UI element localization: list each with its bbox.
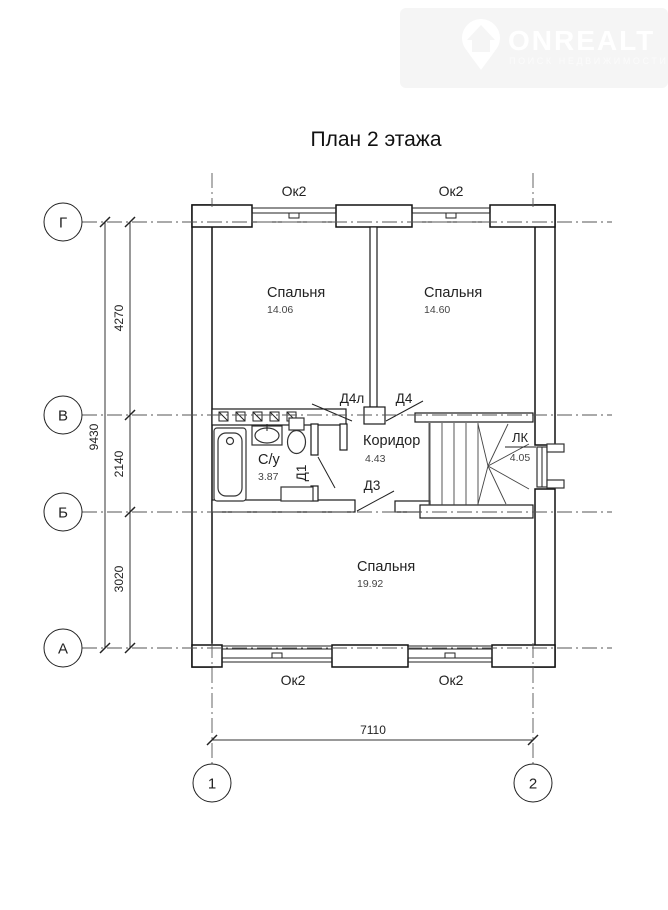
svg-text:1: 1 bbox=[208, 776, 216, 793]
axis-bubble-2: 2 bbox=[514, 764, 552, 802]
wall-top-left bbox=[192, 205, 252, 227]
room-label-corridor: Коридор 4.43 bbox=[363, 433, 420, 465]
wall-top-right bbox=[490, 205, 555, 227]
wall-top-middle bbox=[336, 205, 412, 227]
room-area: 3.87 bbox=[258, 471, 279, 483]
window-top-right bbox=[412, 208, 490, 222]
wall-left bbox=[192, 205, 212, 667]
svg-text:2: 2 bbox=[529, 776, 537, 793]
axis-bubble-g: Г bbox=[44, 203, 82, 241]
window-label-top-left: Ок2 bbox=[282, 183, 307, 199]
room-area: 4.05 bbox=[510, 452, 531, 464]
window-label-bottom-right: Ок2 bbox=[439, 672, 464, 688]
axis-bubble-1: 1 bbox=[193, 764, 231, 802]
dim-segment-4270: 4270 bbox=[112, 304, 126, 331]
axis-bubble-b: Б bbox=[44, 493, 82, 531]
window-right-wall bbox=[537, 444, 564, 488]
watermark-banner: ONREALT ПОИСК НЕДВИЖИМОСТИ bbox=[400, 8, 668, 88]
room-label-bathroom: С/у 3.87 bbox=[258, 452, 281, 483]
axis-bubble-v: В bbox=[44, 396, 82, 434]
room-name: ЛК bbox=[512, 430, 529, 445]
axis-bubble-a: А bbox=[44, 629, 82, 667]
floor-plan-drawing: ONREALT ПОИСК НЕДВИЖИМОСТИ План 2 этажа bbox=[0, 0, 668, 910]
floor-plan-page: ONREALT ПОИСК НЕДВИЖИМОСТИ План 2 этажа bbox=[0, 0, 668, 910]
room-name: Спальня bbox=[357, 559, 415, 575]
wall-stairs-south bbox=[420, 505, 533, 518]
door-label-d4: Д4 bbox=[396, 391, 413, 406]
room-name: Спальня bbox=[424, 285, 482, 301]
axis-grid-lines bbox=[82, 173, 612, 764]
door-swing-d1 bbox=[318, 457, 335, 488]
room-area: 4.43 bbox=[365, 453, 386, 465]
room-area: 19.92 bbox=[357, 578, 383, 590]
brand-tagline: ПОИСК НЕДВИЖИМОСТИ bbox=[509, 56, 668, 66]
room-area: 14.60 bbox=[424, 304, 450, 316]
room-label-stairs: ЛК 4.05 bbox=[505, 430, 536, 464]
svg-text:Б: Б bbox=[58, 505, 68, 522]
toilet-icon bbox=[288, 418, 306, 454]
wall-corridor-west-stub bbox=[340, 424, 347, 450]
door-swing-d3 bbox=[357, 491, 394, 511]
room-name: С/у bbox=[258, 452, 281, 468]
page-title: План 2 этажа bbox=[310, 128, 441, 151]
room-name: Коридор bbox=[363, 433, 420, 449]
dim-total-vertical: 9430 bbox=[87, 423, 101, 450]
wall-stairs-north bbox=[415, 413, 533, 422]
svg-text:Г: Г bbox=[59, 215, 67, 232]
wall-right-upper bbox=[535, 205, 555, 445]
wall-stub-d1 bbox=[311, 424, 318, 455]
room-area: 14.06 bbox=[267, 304, 293, 316]
wall-partition-pier bbox=[364, 407, 385, 424]
window-top-left bbox=[252, 208, 336, 222]
svg-text:А: А bbox=[58, 641, 68, 658]
room-label-bedroom1: Спальня 14.06 bbox=[267, 285, 325, 316]
room-label-bedroom3: Спальня 19.92 bbox=[357, 559, 415, 590]
svg-text:В: В bbox=[58, 408, 68, 425]
dim-total-horizontal: 7110 bbox=[360, 723, 386, 737]
dimension-labels: 9430 4270 2140 3020 7110 bbox=[87, 304, 386, 737]
cabinet-icon bbox=[281, 487, 313, 501]
brand-name: ONREALT bbox=[508, 25, 655, 56]
wall-bathroom-south bbox=[212, 500, 355, 512]
wall-bedroom-partition bbox=[370, 227, 377, 407]
dim-segment-2140: 2140 bbox=[112, 450, 126, 477]
window-label-bottom-left: Ок2 bbox=[281, 672, 306, 688]
room-label-bedroom2: Спальня 14.60 bbox=[424, 285, 482, 316]
room-name: Спальня bbox=[267, 285, 325, 301]
door-label-d1: Д1 bbox=[294, 465, 309, 482]
dim-segment-3020: 3020 bbox=[112, 565, 126, 592]
wall-right-lower bbox=[535, 489, 555, 667]
sink-icon bbox=[252, 424, 282, 445]
window-label-top-right: Ок2 bbox=[439, 183, 464, 199]
door-label-d3: Д3 bbox=[364, 478, 381, 493]
bathtub-icon bbox=[214, 428, 246, 501]
door-label-d4l: Д4л bbox=[340, 391, 365, 406]
